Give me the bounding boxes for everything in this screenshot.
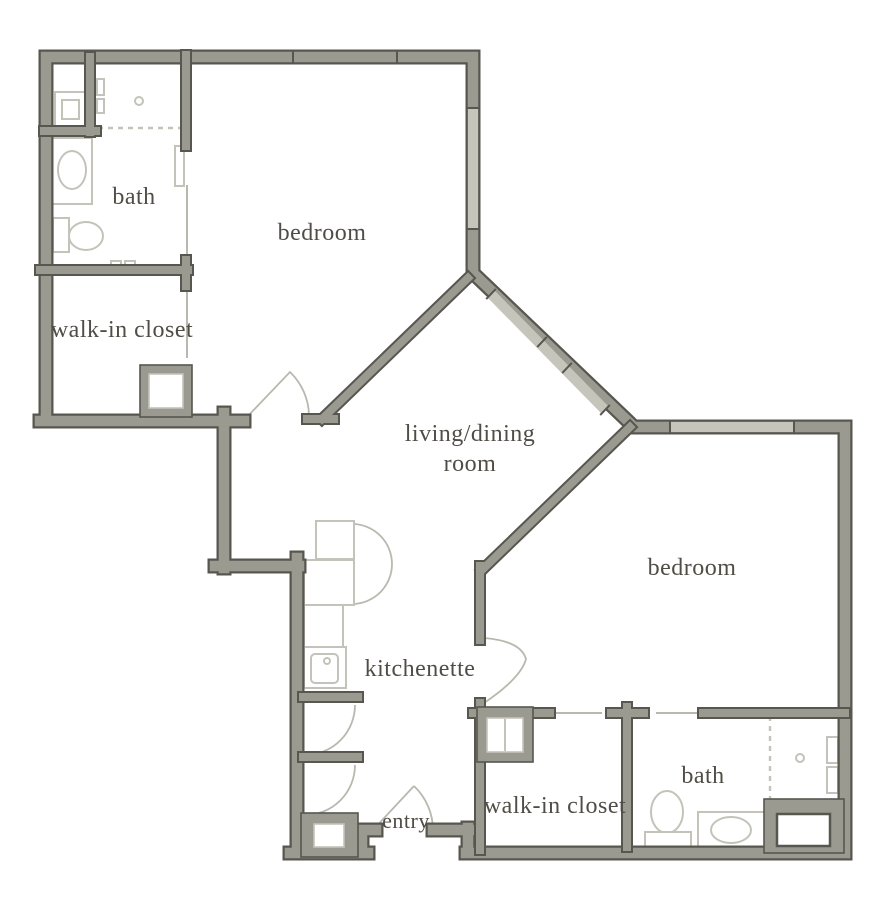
room-label-living-dining-1: living/dining [405,421,536,447]
bath-right-shelf-1 [827,737,838,763]
interior-walls-fill [40,55,845,850]
kitchen-upper-cabinet [316,521,354,559]
exterior-walls-edge [40,57,845,853]
room-labels: bath bedroom walk-in closet living/dinin… [51,184,737,833]
windows [473,108,794,427]
toilet-left-bowl [69,222,103,250]
room-label-kitchenette: kitchenette [365,656,476,682]
room-label-bedroom-top: bedroom [278,220,367,246]
room-label-bath-left: bath [112,184,155,210]
bath-right-shower-inner [777,814,830,846]
closet-left-builtin-shelf [149,374,183,408]
bath-right-shelf-2 [827,767,838,793]
walls [40,50,845,857]
bath-right-drain [796,754,804,762]
bath-left-shelf-2 [97,99,104,113]
kitchen-fridge [304,560,354,605]
room-label-entry: entry [382,808,430,833]
room-label-bath-right: bath [681,763,724,789]
pantry-door-arc [305,705,355,755]
bedroom-right-door-arc [484,638,526,703]
linen-door-arc [305,765,355,815]
kitchen-counter [304,605,343,647]
bath-left-drain [135,97,143,105]
exterior-walls-fill [40,57,845,853]
room-label-walkin-left: walk-in closet [51,317,193,343]
room-label-bedroom-right: bedroom [648,555,737,581]
bedroom-top-door-arc [247,372,309,417]
entry-shaft-inner [314,824,344,847]
room-label-walkin-right: walk-in closet [484,793,626,819]
toilet-right-bowl [651,791,683,833]
floor-plan-canvas: bath bedroom walk-in closet living/dinin… [0,0,886,898]
bath-left-shelf-1 [97,79,104,95]
room-label-living-dining-2: room [444,451,497,477]
interior-walls-edge [40,55,845,850]
shower-pan-left-inner [62,100,79,119]
floor-plan-page: bath bedroom walk-in closet living/dinin… [0,0,886,898]
toilet-left-tank [53,218,69,252]
